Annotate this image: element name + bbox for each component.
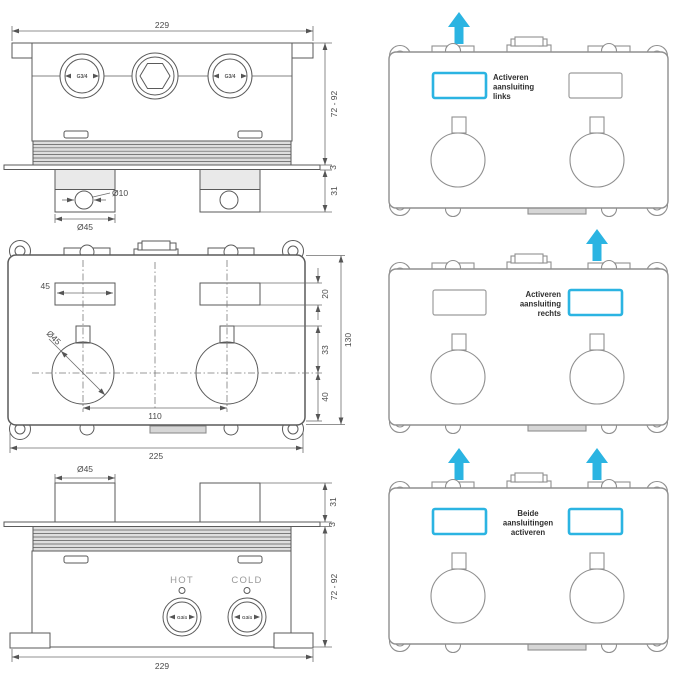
bolt-detail <box>507 254 551 270</box>
top-view-drawing: 229 G3/4 G3/4 <box>0 0 360 235</box>
dim-label-total-height: 130 <box>343 333 353 347</box>
bolt-detail <box>507 473 551 489</box>
dim-label-total-width: 225 <box>149 451 163 460</box>
option-right-panel: Activeren aansluiting rechts <box>385 222 685 444</box>
dim-label-plate: 3 <box>328 165 338 170</box>
dim-label-stem-to-center: 33 <box>320 345 330 355</box>
dim-label-plate: 3 <box>327 522 337 527</box>
dim-label-depth-range: 72 - 92 <box>329 90 339 117</box>
connector-block-left: Ø10 Ø45 <box>55 170 128 233</box>
dim-connector-diameter: Ø45 <box>55 464 115 483</box>
dim-label-connector-diameter: Ø45 <box>77 222 93 232</box>
cold-inlet: COLD G3/4 <box>228 575 266 636</box>
instruction-line: aansluitingen <box>503 519 553 528</box>
dim-label-spacing: 110 <box>148 411 162 421</box>
dim-label-connector-depth: 31 <box>328 497 338 507</box>
connector-block-right <box>200 483 260 522</box>
up-arrow-icon <box>586 448 608 480</box>
instruction-line: links <box>493 92 511 101</box>
dim-label-width: 229 <box>155 20 169 30</box>
slot-left-active <box>433 509 486 534</box>
slot-left <box>433 290 486 315</box>
port-size-label: G3/4 <box>242 615 252 620</box>
stem-left <box>452 553 466 569</box>
instruction-line: Activeren <box>493 73 529 82</box>
bolt-detail <box>134 241 178 256</box>
dim-label-slot-width: 45 <box>41 281 51 291</box>
stem-right <box>590 334 604 350</box>
slot-left-active <box>433 73 486 98</box>
front-view-drawing: 45 Ø45 110 225 <box>0 235 360 460</box>
wall-plate <box>4 522 320 527</box>
stem-left <box>452 117 466 133</box>
dim-label-width: 229 <box>155 661 169 671</box>
cold-label: COLD <box>231 575 262 586</box>
connector-block-left <box>55 483 115 522</box>
slot-right-active <box>569 290 622 315</box>
stem-left <box>452 334 466 350</box>
port-size-label: G3/4 <box>177 615 187 620</box>
stem-right <box>590 117 604 133</box>
up-arrow-icon <box>586 229 608 261</box>
wall-plate <box>4 165 320 170</box>
up-arrow-icon <box>448 448 470 480</box>
slot-left <box>64 556 88 563</box>
center-cartridge <box>132 53 178 99</box>
slot-right <box>569 73 622 98</box>
instruction-line: aansluiting <box>493 83 534 92</box>
port-size-label: G3/4 <box>77 74 88 80</box>
instruction-line: Beide <box>517 509 539 518</box>
foot-left <box>10 633 50 648</box>
dim-label-hole: Ø10 <box>112 188 128 198</box>
bottom-view-drawing: Ø45 HOT G3/4 COLD G3/4 <box>0 460 360 685</box>
slot-right <box>238 131 262 138</box>
valve-body-top: G3/4 G3/4 <box>4 43 320 170</box>
slot-right-active <box>569 509 622 534</box>
instruction-line: activeren <box>511 528 545 537</box>
port-right: G3/4 <box>208 54 252 98</box>
connector-block-right <box>200 170 260 213</box>
hot-label: HOT <box>170 575 194 586</box>
foot-right <box>274 633 313 648</box>
dim-label-center-to-bottom: 40 <box>320 392 330 402</box>
slot-right <box>200 283 260 305</box>
slot-left <box>55 283 115 305</box>
dim-label-connector-depth: 31 <box>329 186 339 196</box>
slot-right <box>238 556 262 563</box>
dim-label-connector-diameter: Ø45 <box>77 464 93 474</box>
bolt-detail <box>507 37 551 53</box>
port-size-label: G3/4 <box>225 74 236 80</box>
dim-label-slot-height: 20 <box>320 289 330 299</box>
option-left-panel: Activeren aansluiting links <box>385 5 685 225</box>
dim-total-width: 225 <box>10 432 303 460</box>
dim-width-229: 229 <box>12 20 313 41</box>
dim-label-depth-range: 72 - 92 <box>329 573 339 600</box>
instruction-line: aansluiting <box>520 300 561 309</box>
instruction-line: Activeren <box>525 290 561 299</box>
port-left: G3/4 <box>60 54 104 98</box>
stem-right <box>590 553 604 569</box>
installation-diagram-sheet: 229 G3/4 G3/4 <box>0 0 685 685</box>
up-arrow-icon <box>448 12 470 44</box>
option-both-panel: Beide aansluitingen activeren <box>385 444 685 679</box>
instruction-line: rechts <box>538 309 562 318</box>
slot-left <box>64 131 88 138</box>
dim-width-229: 229 <box>12 649 313 671</box>
